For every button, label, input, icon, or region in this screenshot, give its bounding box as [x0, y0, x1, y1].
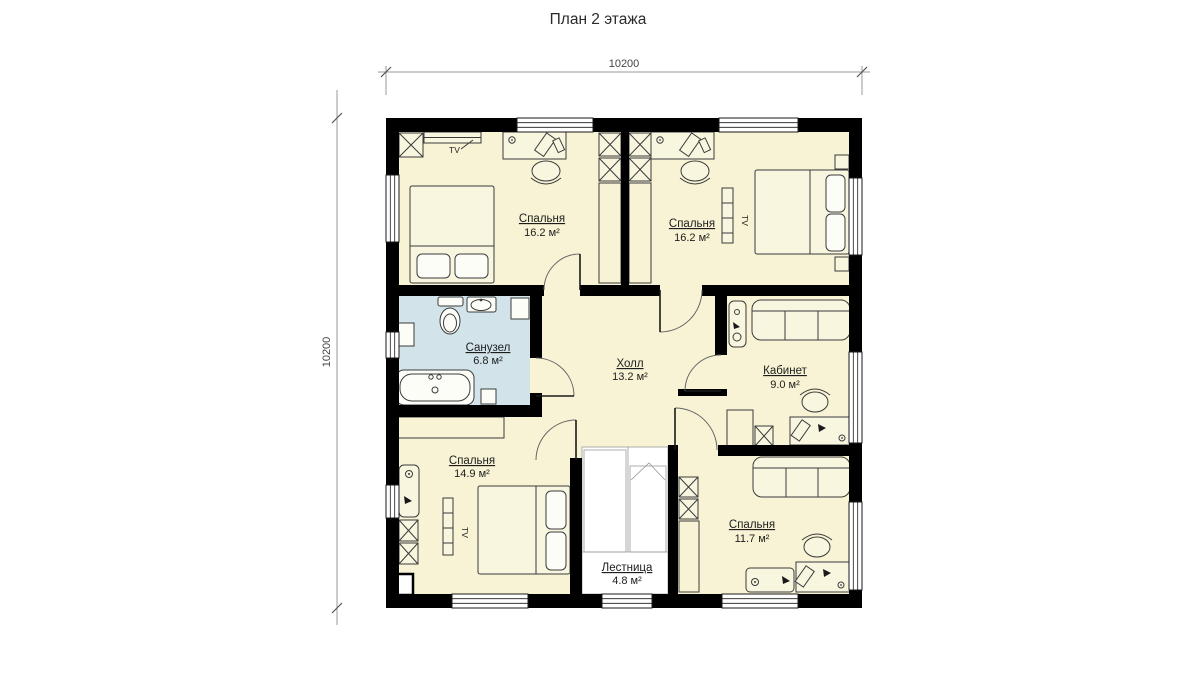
room-name: Лестница — [602, 562, 653, 574]
bed — [478, 486, 570, 574]
niche — [397, 574, 413, 595]
coat-stand — [729, 301, 746, 347]
pillow — [455, 254, 488, 278]
window — [517, 118, 593, 132]
window — [722, 594, 798, 608]
nightstand — [835, 155, 849, 169]
window — [849, 352, 862, 443]
room-name: Спальня — [729, 519, 775, 531]
sofa — [752, 300, 850, 340]
pillow — [417, 254, 450, 278]
nightstand — [835, 257, 849, 271]
dresser — [399, 465, 419, 517]
desk — [503, 132, 566, 159]
room-name: Холл — [616, 358, 643, 370]
room-name: Спальня — [449, 455, 495, 467]
room-area: 13.2 м² — [612, 371, 648, 383]
desk — [795, 562, 850, 592]
tv-label: TV — [740, 215, 750, 226]
bed — [410, 186, 494, 283]
room-area: 11.7 м² — [735, 533, 770, 545]
room-name: Спальня — [519, 213, 565, 225]
dresser — [746, 568, 794, 592]
page-title: План 2 этажа — [550, 11, 647, 28]
desk-chair — [531, 161, 561, 184]
pillow — [826, 175, 845, 212]
tv-label: TV — [449, 145, 460, 155]
dimension-height-label: 10200 — [321, 337, 333, 368]
room-label-bedroom-bottom-left: Спальня 14.9 м² — [449, 455, 495, 480]
heated-rail — [398, 323, 414, 346]
desk-chair — [800, 389, 830, 412]
tv-label: TV — [460, 527, 470, 538]
window — [719, 118, 798, 132]
bathtub — [396, 370, 474, 405]
room-area: 9.0 м² — [770, 379, 800, 391]
desk-chair — [802, 534, 832, 557]
floor-drain — [481, 389, 496, 404]
vent-box — [399, 133, 423, 157]
desk-chair — [680, 161, 710, 184]
vent-box — [755, 426, 773, 446]
window — [849, 502, 862, 590]
pillow — [546, 532, 566, 570]
window — [849, 178, 862, 255]
pillow — [826, 214, 845, 251]
floor-plan: План 2 этажа TV — [0, 0, 1200, 675]
sofa — [753, 457, 850, 497]
bed — [755, 155, 849, 271]
window — [452, 594, 528, 608]
window — [386, 485, 399, 518]
room-name: Санузел — [466, 342, 511, 354]
pillow — [546, 491, 566, 529]
dimension-left: 10200 — [321, 90, 342, 625]
dimension-top: 10200 — [378, 58, 870, 95]
room-area: 16.2 м² — [674, 232, 710, 244]
sink — [467, 297, 496, 312]
room-area: 14.9 м² — [454, 468, 490, 480]
room-area: 16.2 м² — [524, 227, 560, 239]
desk — [790, 417, 850, 445]
room-label-hall: Холл 13.2 м² — [612, 358, 648, 383]
room-name: Кабинет — [763, 365, 807, 377]
room-area: 4.8 м² — [612, 575, 642, 587]
dimension-width-label: 10200 — [609, 58, 640, 70]
room-area: 6.8 м² — [473, 355, 503, 367]
window — [602, 594, 652, 608]
desk — [651, 132, 714, 159]
window — [386, 332, 399, 358]
window — [386, 175, 399, 242]
washer — [511, 298, 529, 319]
room-name: Спальня — [669, 218, 715, 230]
